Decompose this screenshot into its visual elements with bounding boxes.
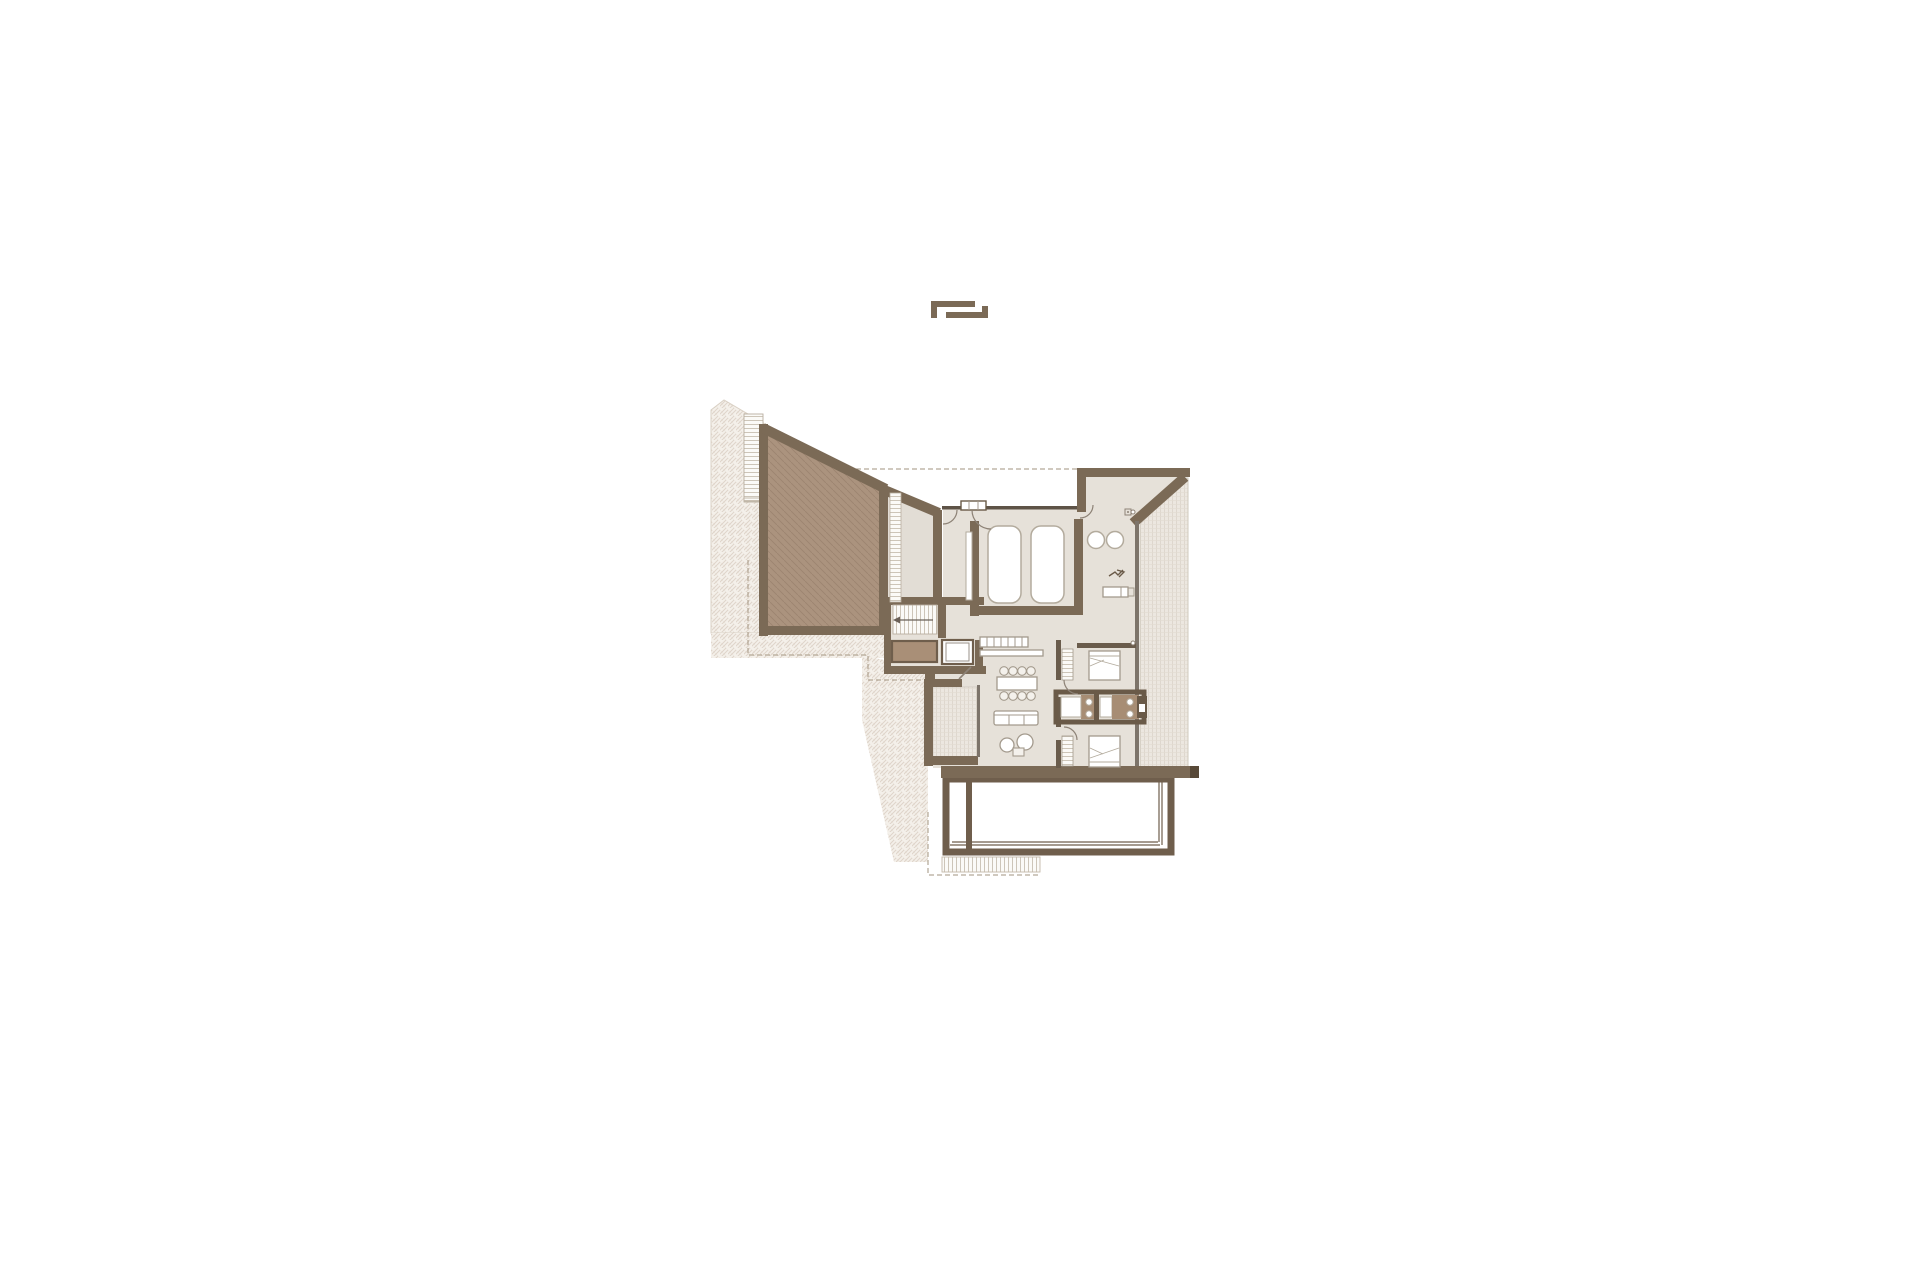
dining-chair [1000,667,1009,676]
wall-living-west-glazing [977,685,980,757]
bathroom-east-niche-inset [1139,704,1145,712]
entry-window [961,501,986,510]
bathroom-right-wc [1127,699,1133,705]
section-marker-lower-L [946,306,988,318]
wall-roof-room-west [759,424,768,636]
wall-corridor-west [933,510,942,603]
lower-terrace-parapet-lines [950,782,1162,845]
bathroom-right-shower [1100,697,1112,717]
floor-plan-page [0,0,1920,1280]
void-room-glazing-strip [890,493,901,602]
twin-bed-left [988,526,1021,603]
bathroom-divider-wall [1094,693,1099,721]
kitchen-counter [980,650,1043,656]
wall-north-main [1077,468,1190,477]
wall-bedroom1-north [1077,643,1136,648]
bathroom-left-bidet [1086,711,1092,717]
wall-west-terrace-north [924,679,962,687]
wall-roof-room-south [759,626,888,635]
wall-west-terrace-west [924,679,933,766]
east-terrace [1140,478,1188,768]
east-door-hinge-upper [1131,510,1135,514]
wall-south-end-cap [1190,766,1199,778]
bathroom-right-vanity [1112,695,1139,719]
wall-twinroom-south [970,606,1083,615]
dining-chair [1018,692,1027,701]
bottom-pergola-strip [942,857,1040,872]
east-door-hinge-lower [1131,641,1135,645]
bedroom-middle [1089,651,1120,680]
twin-bed-right [1031,526,1064,603]
stair-storage-block [892,641,937,662]
wall-stair-west [884,597,891,674]
wall-spine-lower [1056,740,1061,768]
exterior-hatch-descending-band [862,655,928,862]
sliding-panel [966,532,972,600]
wall-stair-east [938,605,946,638]
bathroom-left-wc [1086,699,1092,705]
wall-twinroom-east [1074,519,1083,613]
floor-plan-canvas [0,0,1920,1280]
dining-chair [1009,667,1018,676]
bed-middle [1089,651,1120,680]
dining-table [997,677,1037,690]
floor-drain-dot [1127,511,1129,513]
side-table [1013,748,1024,756]
wall-spine-upper [1056,640,1061,680]
section-marker-icon [931,301,988,318]
wall-west-terrace-south [924,756,978,765]
west-terrace [933,687,977,757]
bedroom1-closet [1062,649,1073,680]
bedroom2-closet [1062,736,1073,766]
dining-chair [1027,692,1036,701]
dining-zone [997,667,1037,701]
dining-chair [1000,692,1009,701]
sofa [994,711,1038,725]
exterior-hatch-bottom-band [711,633,888,658]
bathroom-block [1056,692,1147,722]
bathroom-right-bidet [1127,711,1133,717]
lounge-chair [1000,738,1014,752]
wall-south-main [941,766,1199,778]
dining-chair [1009,692,1018,701]
dining-chair [1018,667,1027,676]
lower-roof-terrace [946,779,1171,852]
elevator-shaft [942,640,973,664]
exterior-stair-bottom [942,857,1040,872]
bathroom-left-shower [1061,697,1081,717]
dining-chair [1027,667,1036,676]
basin-left [1088,532,1105,549]
basin-right [1107,532,1124,549]
spa-console [1103,587,1128,597]
bedroom-south [1089,736,1120,767]
